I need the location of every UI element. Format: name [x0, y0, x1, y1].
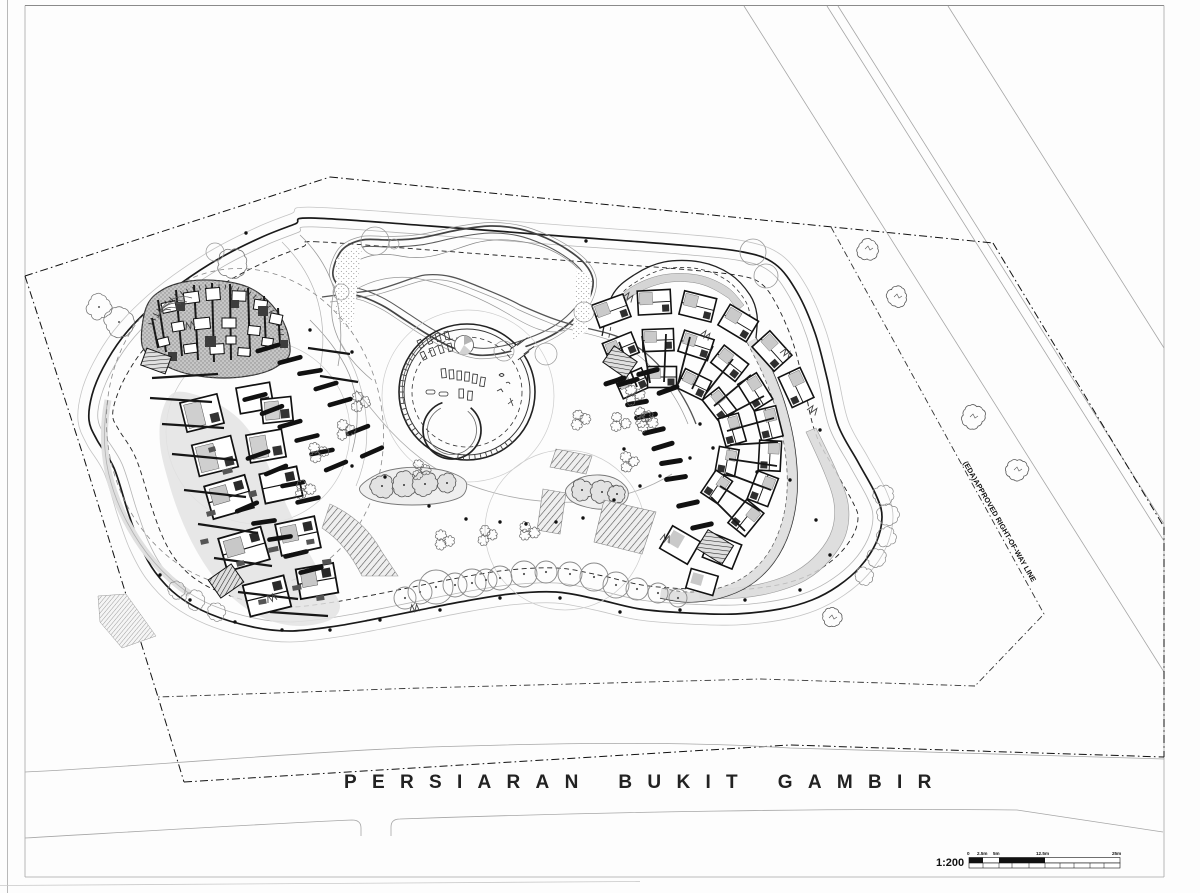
svg-text:0: 0 — [967, 851, 970, 856]
svg-text:1:200: 1:200 — [936, 857, 964, 869]
svg-text:PERSIARAN BUKIT GAMBIR: PERSIARAN BUKIT GAMBIR — [344, 772, 947, 793]
svg-text:2.5m: 2.5m — [977, 851, 987, 856]
svg-text:25m: 25m — [1112, 851, 1121, 856]
svg-text:12.5m: 12.5m — [1036, 851, 1049, 856]
svg-text:5m: 5m — [993, 851, 1000, 856]
